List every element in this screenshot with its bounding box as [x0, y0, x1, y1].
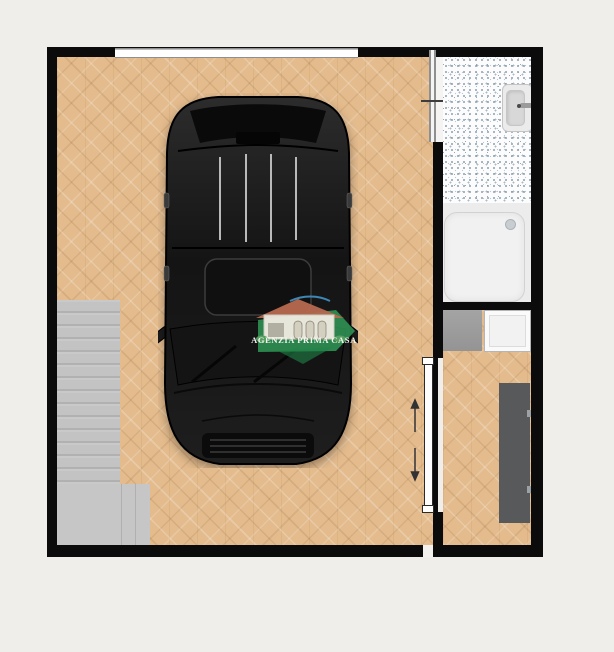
arrow-down-head-icon: [412, 472, 419, 480]
floorplan-page: { "page": { "background_color": "#f0eeea…: [0, 0, 614, 652]
car-roof-box: [236, 132, 280, 144]
sliding-door-cap: [422, 357, 434, 365]
watermark-logo: AGENZIA PRIMA CASA: [248, 291, 362, 367]
sliding-door-cap: [422, 505, 434, 513]
arrow-up-head-icon: [412, 400, 419, 408]
utility-sliding-door: [424, 364, 433, 506]
floorplan-canvas: AGENZIA PRIMA CASA: [0, 0, 614, 652]
wall-segment: [47, 47, 57, 557]
door-handle-tick: [421, 100, 443, 102]
staircase-flight: [57, 300, 120, 484]
appliance-inner: [489, 315, 526, 347]
sliding-door-arrows: [408, 392, 422, 502]
wall-segment: [433, 310, 443, 358]
wardrobe: [499, 383, 530, 523]
wall-segment: [433, 302, 543, 310]
shower-drain-icon: [505, 219, 516, 230]
logo-agency-name: AGENZIA PRIMA CASA: [251, 335, 357, 345]
wall-segment: [433, 512, 443, 545]
wall-segment: [47, 545, 543, 557]
wall-segment: [433, 142, 443, 302]
bathroom-pocket-door: [429, 50, 436, 142]
window: [115, 48, 358, 58]
wall-segment: [433, 358, 438, 512]
car-top-view: [158, 93, 358, 468]
door-track-slit: [423, 545, 433, 557]
sink-knob-icon: [517, 104, 521, 108]
car-grille: [202, 433, 314, 458]
staircase-landing: [57, 484, 150, 545]
sink-basin: [506, 90, 525, 126]
counter: [443, 310, 482, 351]
